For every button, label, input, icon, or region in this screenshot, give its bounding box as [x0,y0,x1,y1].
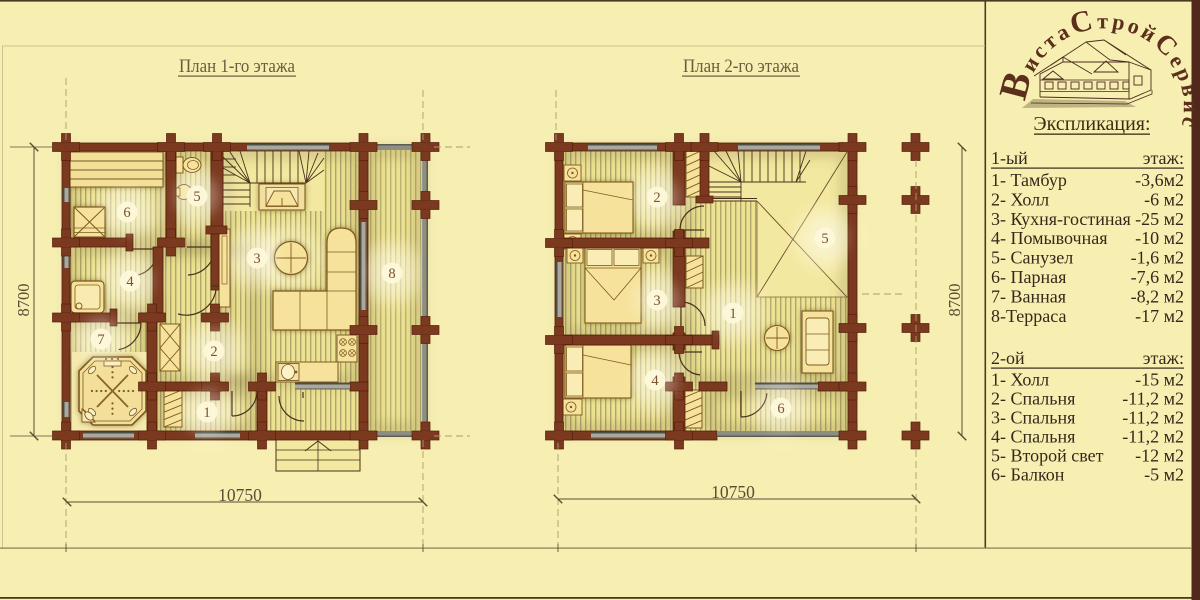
svg-text:2: 2 [210,344,217,360]
svg-text:-25 м2: -25 м2 [1135,209,1184,229]
svg-text:Экспликация:: Экспликация: [1033,113,1150,135]
svg-text:1: 1 [203,405,210,421]
svg-text:1- Холл: 1- Холл [991,370,1049,390]
svg-text:-1,6 м2: -1,6 м2 [1131,248,1184,268]
svg-text:2- Спальня: 2- Спальня [991,389,1075,409]
svg-text:6: 6 [123,205,130,221]
svg-text:-6 м2: -6 м2 [1144,189,1184,209]
svg-text:-10 м2: -10 м2 [1135,228,1184,248]
svg-text:6- Балкон: 6- Балкон [991,465,1065,485]
svg-text:-3,6м2: -3,6м2 [1135,170,1184,190]
svg-text:3: 3 [253,251,260,267]
svg-text:-11,2 м2: -11,2 м2 [1122,408,1184,428]
svg-text:План 1-го этажа: План 1-го этажа [179,56,295,77]
svg-text:1: 1 [729,306,736,322]
svg-text:8700: 8700 [14,284,33,317]
svg-text:-15 м2: -15 м2 [1135,370,1184,390]
svg-text:4- Спальня: 4- Спальня [991,427,1075,447]
svg-text:10750: 10750 [218,485,262,505]
svg-text:5- Второй свет: 5- Второй свет [991,446,1104,466]
svg-text:3- Спальня: 3- Спальня [991,408,1075,428]
svg-text:1-ый: 1-ый [991,148,1028,168]
svg-text:-7,6 м2: -7,6 м2 [1131,267,1184,287]
svg-text:5: 5 [193,189,200,205]
svg-text:6: 6 [777,401,784,417]
svg-text:3: 3 [653,293,660,309]
svg-text:-8,2 м2: -8,2 м2 [1131,286,1184,306]
svg-text:-5 м2: -5 м2 [1144,465,1184,485]
svg-text:этаж:: этаж: [1143,148,1184,168]
svg-text:1- Тамбур: 1- Тамбур [991,170,1067,190]
svg-text:План 2-го этажа: План 2-го этажа [683,56,799,77]
svg-text:8700: 8700 [945,284,964,317]
svg-text:-11,2 м2: -11,2 м2 [1122,389,1184,409]
svg-text:5: 5 [821,231,828,247]
svg-text:10750: 10750 [711,482,755,502]
svg-text:2: 2 [653,190,660,206]
svg-text:7- Ванная: 7- Ванная [991,286,1066,306]
svg-text:3- Кухня-гостиная: 3- Кухня-гостиная [991,209,1131,229]
svg-text:7: 7 [97,332,104,348]
svg-text:этаж:: этаж: [1143,348,1184,368]
svg-text:5- Санузел: 5- Санузел [991,248,1073,268]
svg-text:4- Помывочная: 4- Помывочная [991,228,1108,248]
svg-text:6- Парная: 6- Парная [991,267,1066,287]
svg-text:8: 8 [388,266,395,282]
svg-text:4: 4 [126,274,134,290]
svg-text:-12 м2: -12 м2 [1135,446,1184,466]
svg-text:-17 м2: -17 м2 [1135,306,1184,326]
svg-text:2- Холл: 2- Холл [991,189,1049,209]
svg-text:-11,2 м2: -11,2 м2 [1122,427,1184,447]
svg-text:4: 4 [651,373,659,389]
svg-text:8-Терраса: 8-Терраса [991,306,1066,326]
svg-text:2-ой: 2-ой [991,348,1025,368]
